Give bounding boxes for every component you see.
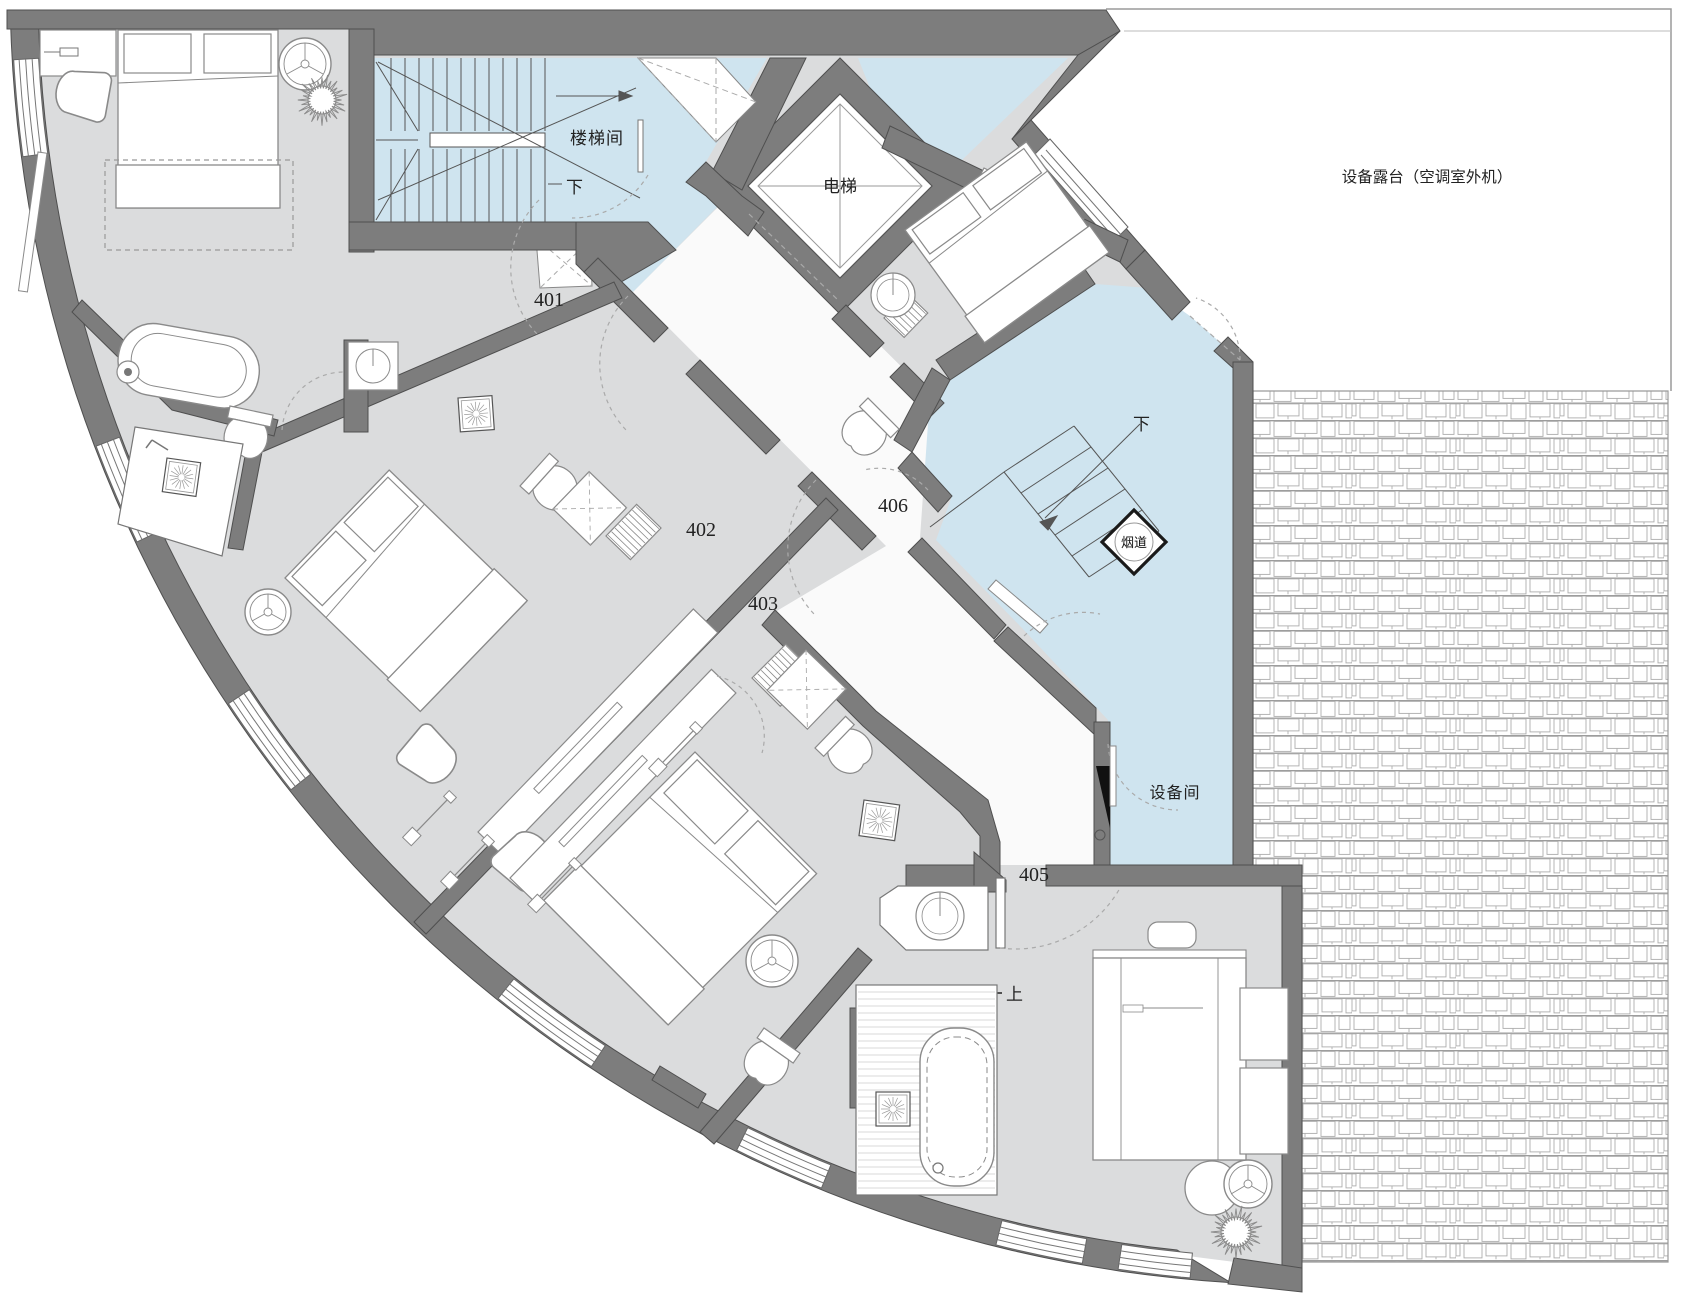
svg-text:401: 401 [534,289,564,311]
svg-text:下: 下 [566,178,583,197]
svg-text:下: 下 [1133,415,1150,434]
svg-text:设备露台（空调室外机）: 设备露台（空调室外机） [1342,168,1513,186]
svg-text:电梯: 电梯 [823,177,857,196]
svg-text:楼梯间: 楼梯间 [570,129,624,148]
svg-text:406: 406 [878,495,908,517]
svg-text:烟道: 烟道 [1121,535,1147,550]
svg-text:405: 405 [1019,864,1049,886]
svg-text:402: 402 [686,519,716,541]
svg-text:上: 上 [1006,985,1023,1004]
svg-text:403: 403 [748,593,778,615]
svg-text:设备间: 设备间 [1149,784,1200,802]
